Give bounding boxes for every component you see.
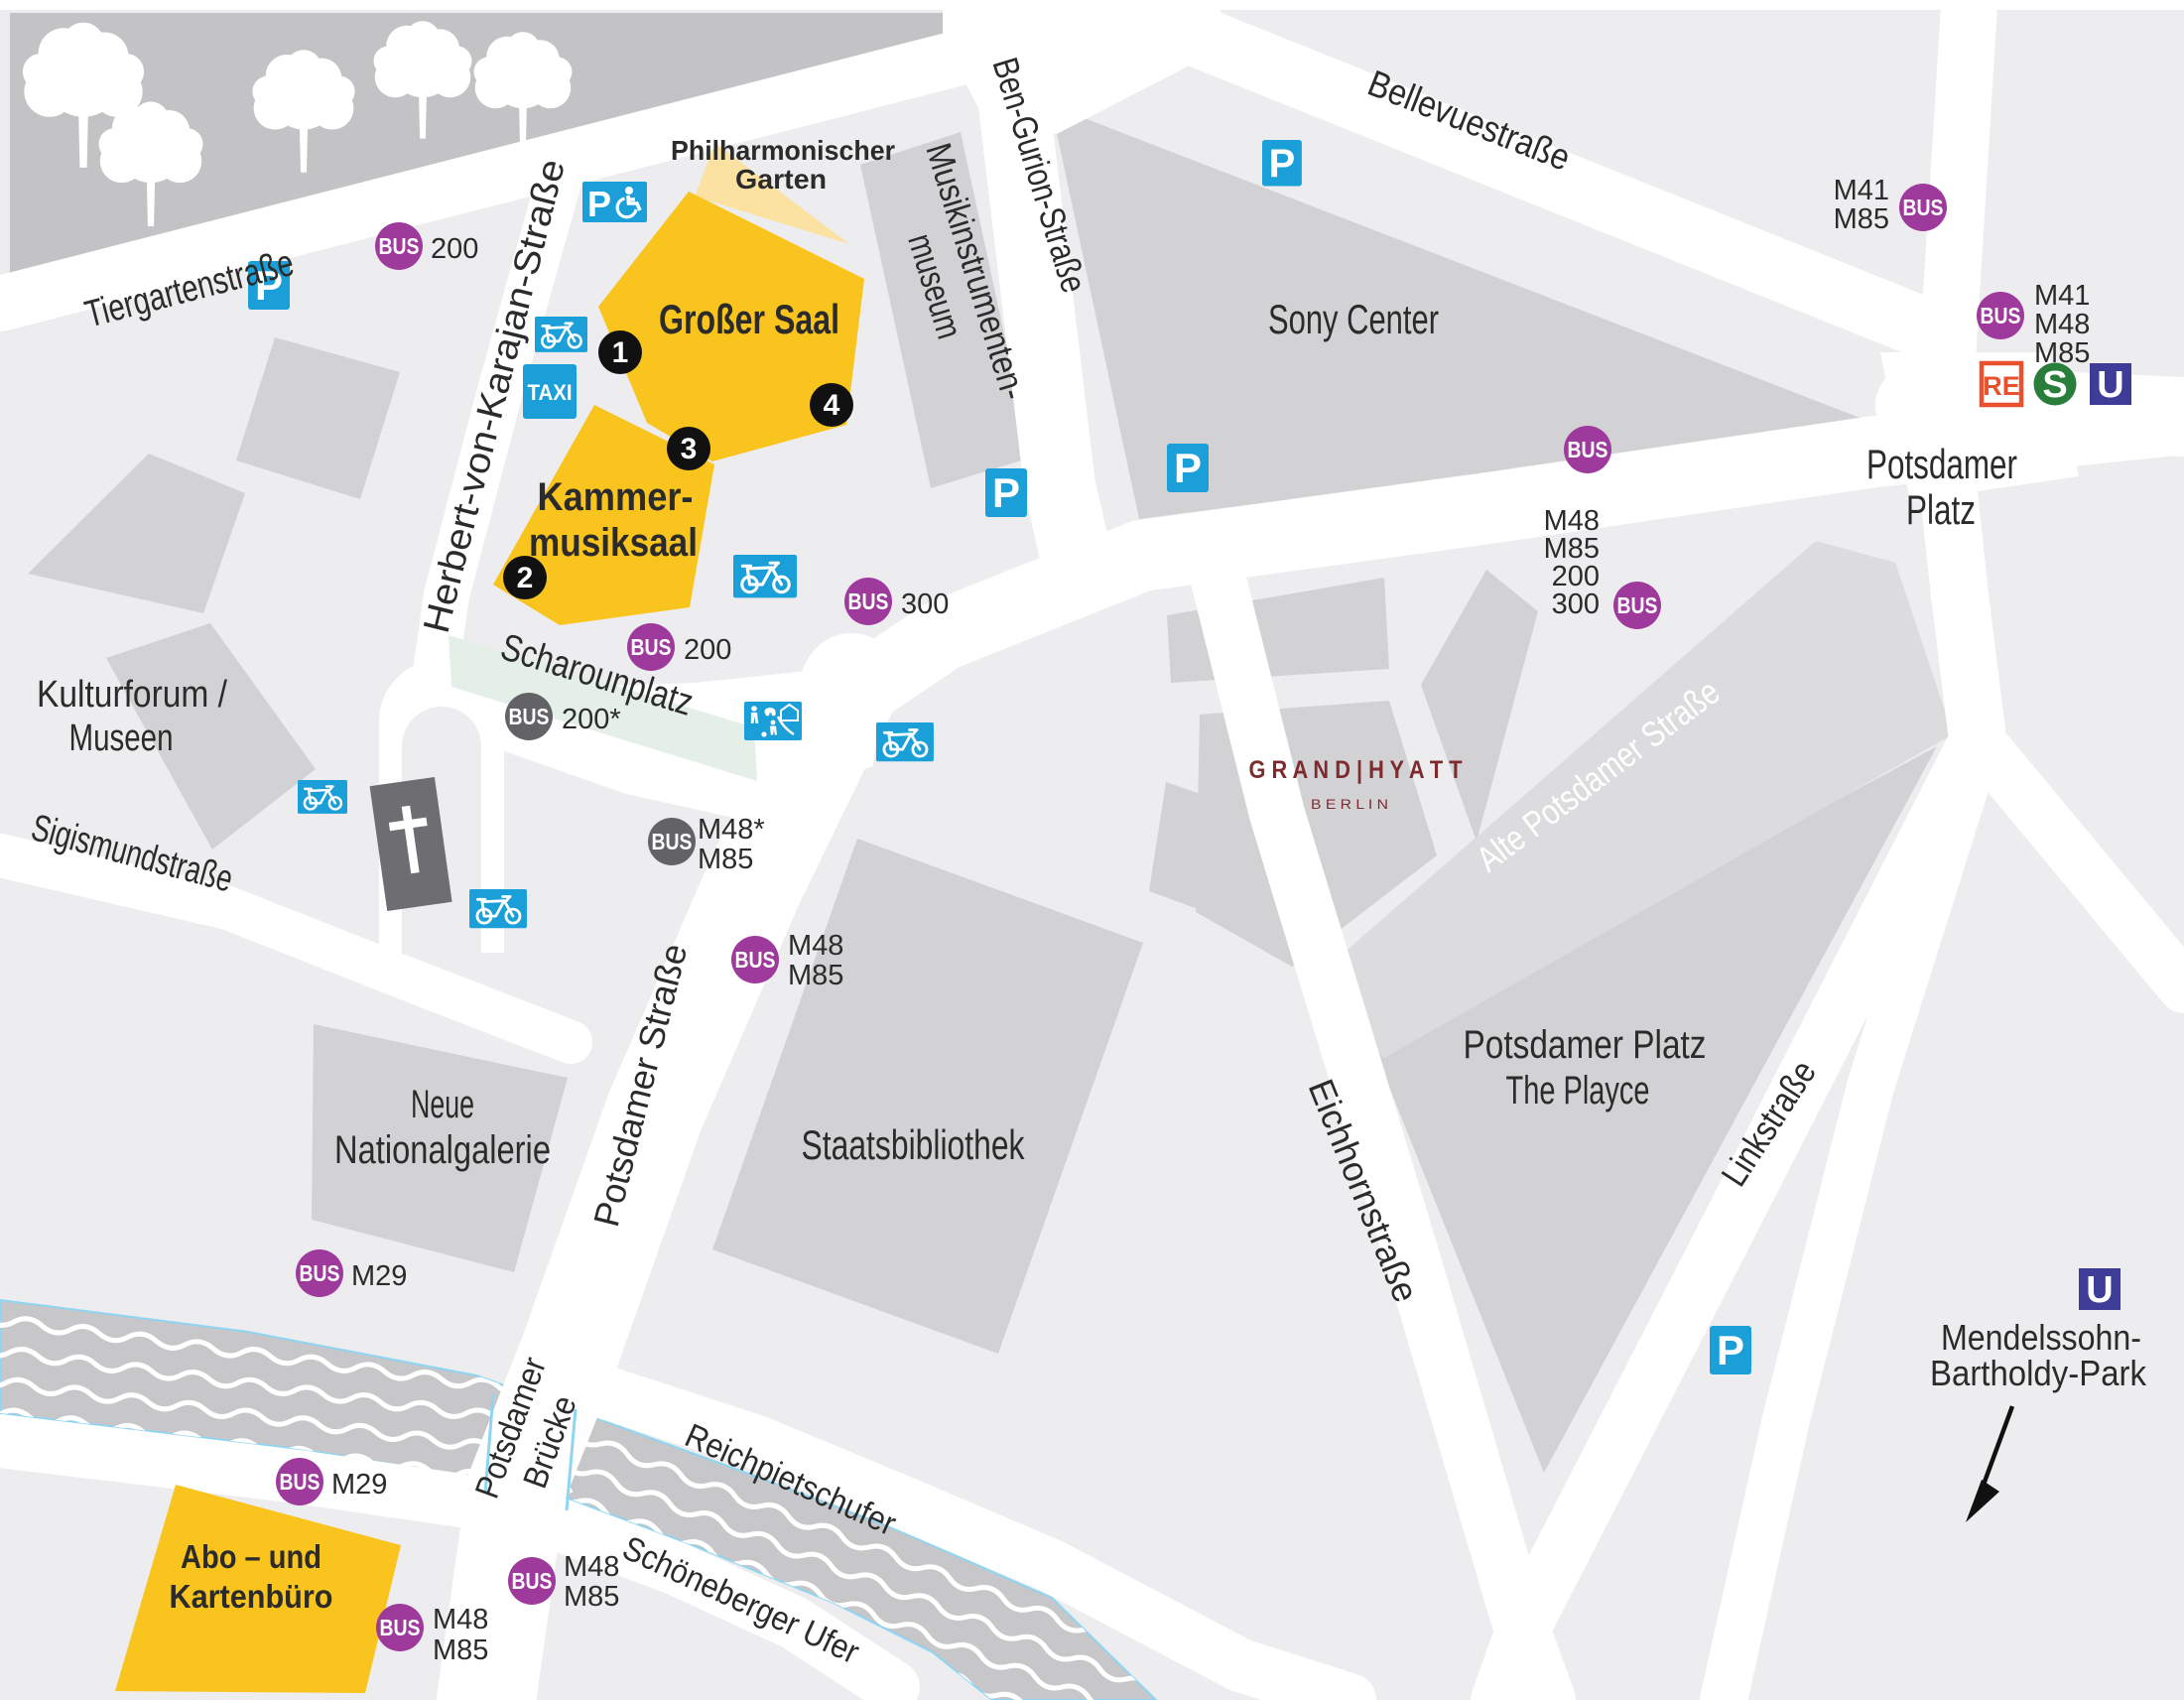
svg-text:Neue: Neue [411,1083,474,1126]
svg-text:M85: M85 [564,1581,619,1613]
svg-text:Philharmonischer: Philharmonischer [671,135,895,166]
svg-text:Kartenbüro: Kartenbüro [170,1578,333,1615]
svg-text:200*: 200* [562,704,621,735]
svg-text:300: 300 [1552,588,1600,620]
svg-text:M41: M41 [1834,175,1889,206]
svg-text:Abo – und: Abo – und [181,1538,321,1575]
svg-text:Potsdamer: Potsdamer [1866,441,2017,487]
svg-text:Potsdamer Platz: Potsdamer Platz [1464,1023,1707,1067]
svg-text:M85: M85 [433,1635,488,1666]
svg-text:Garten: Garten [735,164,827,195]
svg-text:4: 4 [824,389,840,422]
svg-text:3: 3 [681,433,698,465]
svg-text:1: 1 [612,336,629,369]
svg-text:M48: M48 [788,930,843,962]
svg-text:Platz: Platz [1906,486,1976,533]
svg-text:Sony Center: Sony Center [1268,296,1439,342]
svg-text:The Playce: The Playce [1506,1069,1650,1112]
svg-text:U: U [2086,1269,2113,1311]
svg-text:Großer Saal: Großer Saal [659,296,839,342]
svg-text:300: 300 [901,588,949,620]
svg-text:Bartholdy-Park: Bartholdy-Park [1930,1353,2147,1393]
svg-text:TAXI: TAXI [528,380,573,405]
svg-text:M48*: M48* [698,814,765,846]
svg-text:M29: M29 [351,1260,407,1292]
svg-text:U: U [2097,364,2123,406]
svg-text:M48: M48 [564,1551,619,1583]
svg-text:G R A N D | H Y A T T: G R A N D | H Y A T T [1249,756,1463,784]
svg-text:2: 2 [517,562,534,594]
svg-text:Kammer-: Kammer- [538,475,694,519]
svg-text:M85: M85 [788,960,843,991]
svg-text:200: 200 [431,233,478,265]
svg-text:musiksaal: musiksaal [529,521,698,565]
svg-text:M48: M48 [433,1604,488,1635]
svg-text:B E R L I N: B E R L I N [1311,796,1388,812]
svg-text:Nationalgalerie: Nationalgalerie [334,1128,551,1172]
svg-text:Museen: Museen [69,718,174,759]
svg-text:200: 200 [684,634,731,666]
svg-text:Mendelssohn-: Mendelssohn- [1941,1317,2141,1358]
svg-text:Kulturforum /: Kulturforum / [37,674,227,716]
svg-text:M41: M41 [2034,280,2090,312]
svg-text:M85: M85 [698,844,753,875]
svg-text:M48: M48 [2034,309,2090,340]
svg-text:M29: M29 [331,1469,387,1501]
svg-text:M85: M85 [1834,203,1889,235]
svg-text:P: P [587,184,611,224]
svg-text:S: S [2042,364,2067,406]
svg-text:RE: RE [1983,371,2020,401]
svg-text:Staatsbibliothek: Staatsbibliothek [802,1121,1026,1168]
